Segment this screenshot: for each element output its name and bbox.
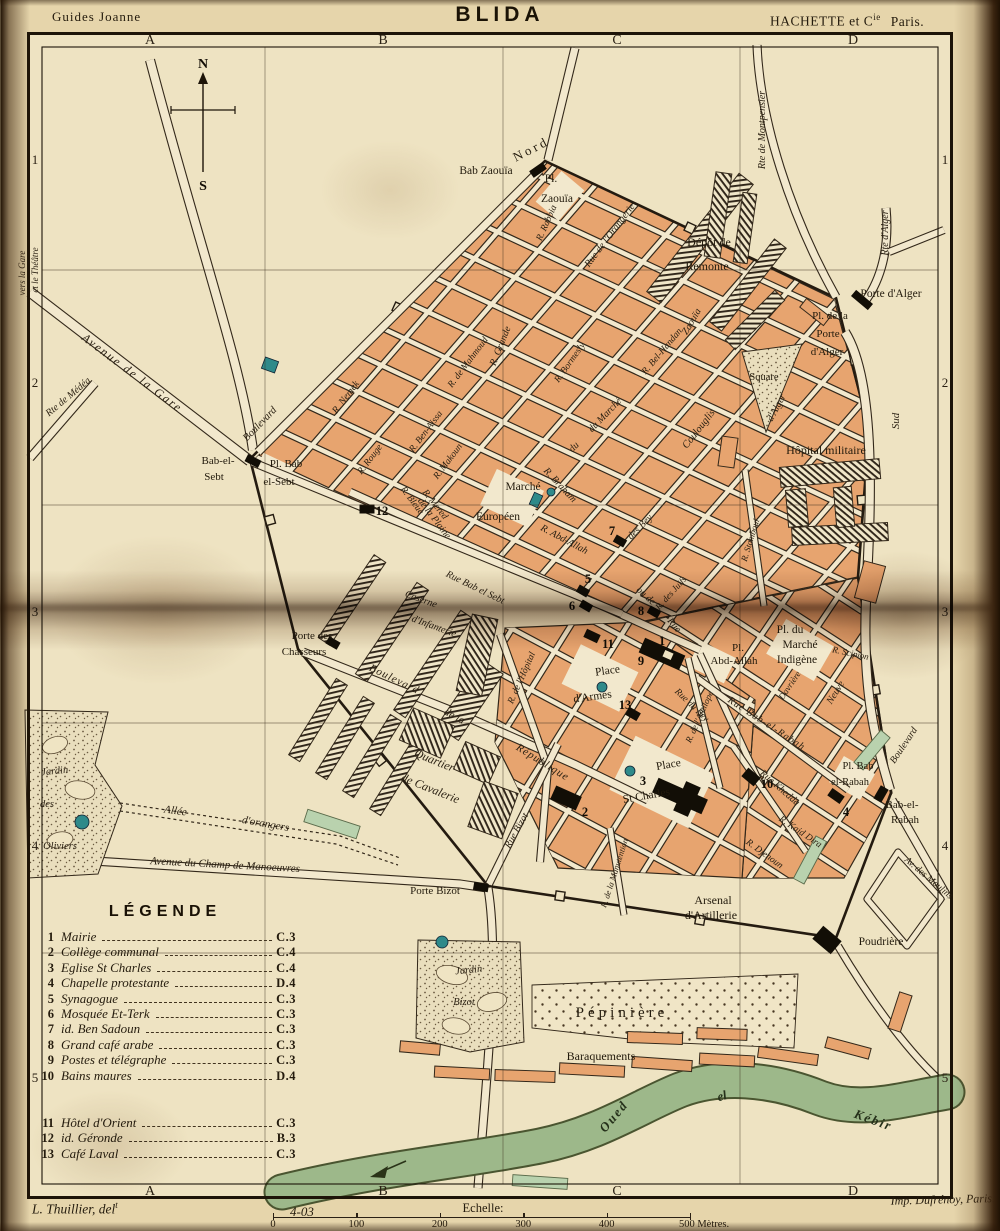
poi-marker-number: 6 bbox=[569, 599, 575, 613]
map-label: Marché bbox=[782, 639, 817, 651]
map-label: Bab-el- bbox=[886, 799, 919, 811]
grid-col-label: A bbox=[145, 33, 156, 48]
poi-marker-number: 8 bbox=[638, 604, 644, 618]
map-label: Oliviers bbox=[43, 841, 77, 852]
fountain bbox=[625, 766, 635, 776]
compass-north-label: N bbox=[198, 57, 208, 72]
grid-col-label: B bbox=[378, 1184, 387, 1199]
grid-row-label: 4 bbox=[942, 838, 949, 853]
fountain bbox=[436, 936, 448, 948]
map-label: Sud bbox=[890, 412, 902, 429]
legend-item: 5SynagogueC.3 bbox=[34, 991, 296, 1006]
map-label: Bizot bbox=[453, 997, 476, 1008]
bastion bbox=[264, 514, 275, 525]
map-label: Pl. bbox=[732, 642, 744, 654]
scale-tick-label: 0 bbox=[270, 1219, 275, 1230]
map-label: Abd-Allah bbox=[710, 655, 758, 667]
legend-item: 2Collège communalC.4 bbox=[34, 944, 296, 959]
legend-rows: 1MairieC.32Collège communalC.43Eglise St… bbox=[34, 929, 296, 1161]
legend-title: LÉGENDE bbox=[34, 903, 296, 921]
legend-item: 4Chapelle protestanteD.4 bbox=[34, 975, 296, 990]
map-label: Porte Bizot bbox=[410, 885, 460, 897]
building-block bbox=[699, 1053, 755, 1067]
military-building bbox=[785, 489, 808, 528]
map-label: Hôpital militaire bbox=[786, 443, 866, 457]
map-label: Zaouïa bbox=[541, 193, 573, 205]
map-label: Marché bbox=[505, 481, 540, 493]
legend-item: 13Café LavalC.3 bbox=[34, 1146, 296, 1161]
map-legend: LÉGENDE 1MairieC.32Collège communalC.43E… bbox=[34, 903, 296, 1161]
grid-col-label: B bbox=[378, 33, 387, 48]
poi-marker-number: 9 bbox=[638, 654, 644, 668]
map-label: Indigène bbox=[777, 654, 817, 666]
map-label: d'Alger bbox=[811, 346, 844, 358]
scale-bar: 0100200300400500 Mètres. bbox=[273, 1217, 690, 1231]
poi-marker-number: 7 bbox=[609, 524, 615, 538]
poi-marker-number: 2 bbox=[582, 805, 588, 819]
map-label: d'Artillerie bbox=[685, 908, 737, 922]
map-label: Pépinière bbox=[576, 1005, 669, 1021]
grid-row-label: 1 bbox=[32, 152, 39, 167]
map-label: Baraquements bbox=[567, 1049, 636, 1063]
map-label: Remonte bbox=[685, 259, 728, 273]
map-label: Chasseurs bbox=[282, 646, 327, 658]
poi-marker-number: 11 bbox=[602, 637, 614, 651]
poi-marker-number: 4 bbox=[843, 805, 850, 819]
building-block bbox=[718, 436, 738, 468]
legend-item: 3Eglise St CharlesC.4 bbox=[34, 960, 296, 975]
scale-tick-label: 300 bbox=[515, 1219, 531, 1230]
fountain bbox=[75, 815, 89, 829]
building-block bbox=[627, 1032, 682, 1045]
building-block bbox=[434, 1066, 490, 1080]
cartographer-credit: L. Thuillier, delt bbox=[32, 1200, 118, 1218]
map-label: Square bbox=[749, 372, 778, 383]
poi-marker-number: 3 bbox=[640, 774, 646, 788]
map-label: Sebt bbox=[204, 471, 224, 483]
gate-or-building bbox=[360, 505, 375, 514]
scale-tick-label: 500 Mètres. bbox=[679, 1219, 729, 1230]
grid-col-label: A bbox=[145, 1184, 156, 1199]
scale-tick-label: 400 bbox=[599, 1219, 615, 1230]
legend-item: 11Hôtel d'OrientC.3 bbox=[34, 1115, 296, 1130]
scale-label: Echelle: bbox=[443, 1201, 523, 1216]
scale-tick-label: 200 bbox=[432, 1219, 448, 1230]
map-label: Rte de Montpensier bbox=[757, 91, 768, 170]
map-label: Dépôt de bbox=[687, 235, 731, 249]
map-label: Arsenal bbox=[694, 893, 732, 907]
legend-item: 7id. Ben SadounC.3 bbox=[34, 1021, 296, 1036]
map-label: vers la Gare bbox=[17, 251, 27, 296]
map-label: Pl. de la bbox=[812, 310, 848, 322]
legend-item: 10Bains mauresD.4 bbox=[34, 1068, 296, 1083]
grid-col-label: C bbox=[612, 33, 621, 48]
grid-col-label: C bbox=[612, 1184, 621, 1199]
map-label: Porte d'Alger bbox=[860, 288, 921, 300]
legend-item: 8Grand café arabeC.3 bbox=[34, 1037, 296, 1052]
map-label: Bab Zaouïa bbox=[459, 165, 512, 177]
legend-item: 6Mosquée Et-TerkC.3 bbox=[34, 1006, 296, 1021]
grid-row-label: 4 bbox=[32, 838, 39, 853]
map-label: Poudrière bbox=[859, 936, 904, 948]
bastion bbox=[555, 891, 565, 901]
scanned-map-page: Guides Joanne BLIDA HACHETTE et CieParis… bbox=[0, 0, 1000, 1231]
grid-row-label: 3 bbox=[32, 604, 39, 619]
map-label: Pl. Bab bbox=[843, 761, 874, 772]
building-block bbox=[697, 1028, 747, 1041]
scale-tick-label: 100 bbox=[349, 1219, 365, 1230]
fountain bbox=[547, 488, 555, 496]
jardin-bizot bbox=[416, 940, 524, 1052]
military-building bbox=[833, 486, 854, 527]
map-label: Européen bbox=[476, 511, 520, 523]
map-label: Porte des bbox=[292, 630, 333, 642]
legend-item: 12id. GérondeB.3 bbox=[34, 1130, 296, 1145]
map-label: Rabah bbox=[891, 814, 920, 826]
map-label: el-Rabah bbox=[831, 777, 870, 788]
map-label: des bbox=[40, 799, 54, 810]
grid-col-label: D bbox=[848, 33, 858, 48]
grid-row-label: 2 bbox=[32, 375, 39, 390]
map-label: Pl. bbox=[545, 173, 558, 185]
poi-marker-number: 12 bbox=[376, 504, 389, 518]
map-label: Pl. Bab bbox=[270, 458, 303, 470]
poi-marker-number: 5 bbox=[585, 572, 591, 586]
map-label: Pl. du bbox=[777, 624, 804, 636]
grid-row-label: 3 bbox=[942, 604, 949, 619]
map-label: Rte d'Alger bbox=[880, 210, 891, 256]
legend-item: 1MairieC.3 bbox=[34, 929, 296, 944]
map-label: el-Sebt bbox=[263, 476, 294, 488]
grid-row-label: 5 bbox=[942, 1070, 949, 1085]
grid-row-label: 2 bbox=[942, 375, 949, 390]
legend-item: 9Postes et télégrapheC.3 bbox=[34, 1052, 296, 1067]
compass-south-label: S bbox=[199, 179, 207, 194]
poi-marker-number: 13 bbox=[619, 698, 632, 712]
map-label: Porte bbox=[816, 328, 839, 340]
map-label: Bab-el- bbox=[202, 455, 235, 467]
poi-marker-number: 1 bbox=[659, 634, 665, 648]
map-label: et le Théâtre bbox=[30, 247, 40, 292]
grid-row-label: 1 bbox=[942, 152, 949, 167]
building-block bbox=[495, 1069, 555, 1082]
